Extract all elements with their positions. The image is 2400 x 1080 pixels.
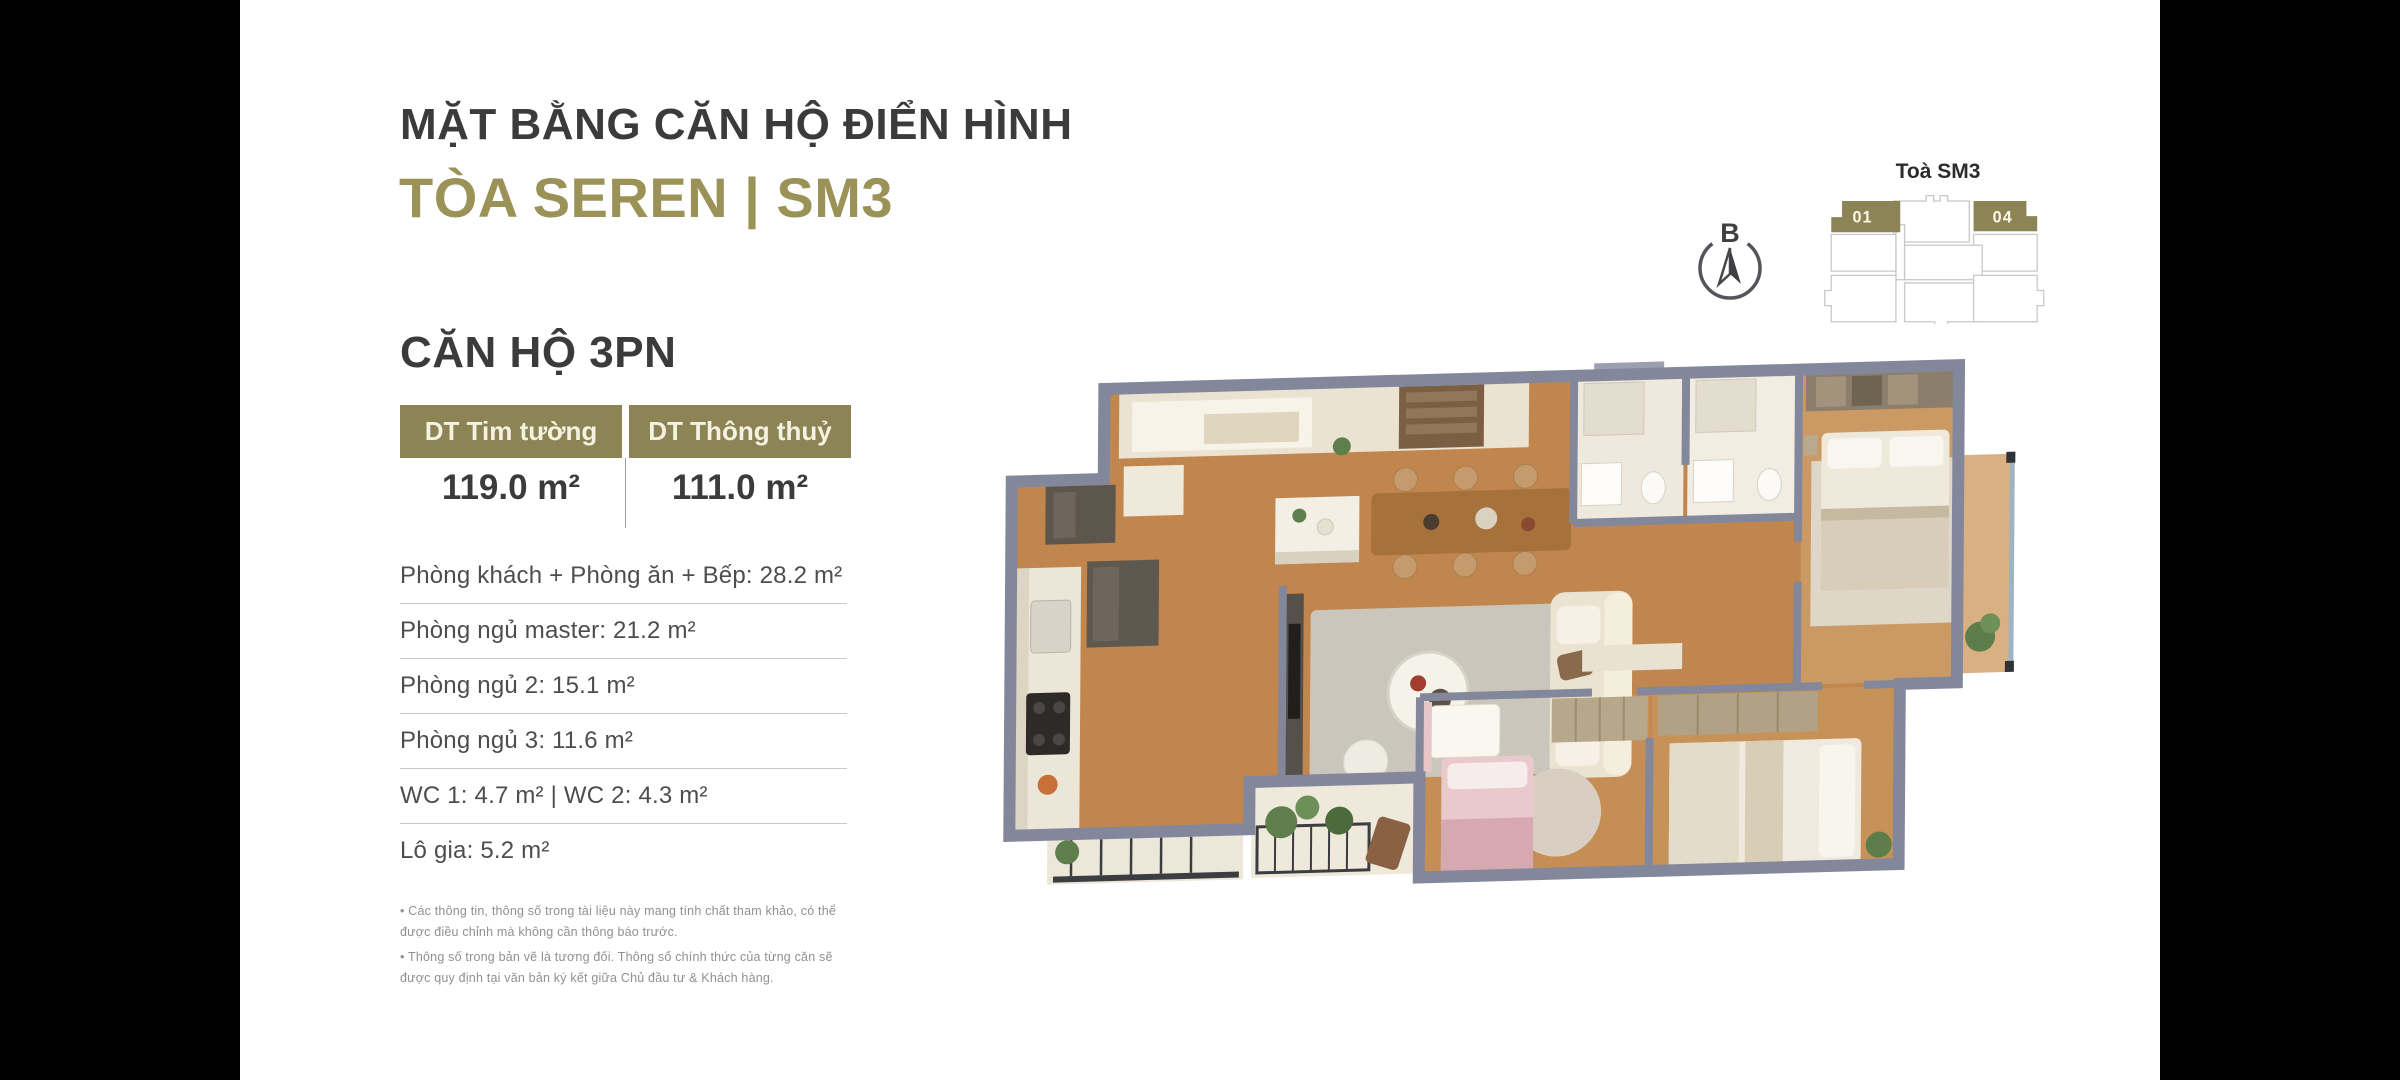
apartment-name: CĂN HỘ 3PN <box>400 328 676 378</box>
master-bedroom <box>1802 369 1960 627</box>
room-list: Phòng khách + Phòng ăn + Bếp: 28.2 m² Ph… <box>400 549 847 878</box>
crib <box>1430 704 1500 758</box>
room-list-item: Phòng ngủ 2: 15.1 m² <box>400 659 847 714</box>
compass-arrow-right <box>1730 248 1741 284</box>
tower-unit-01-label: 01 <box>1852 209 1872 227</box>
tower-unit-04-label: 04 <box>1993 209 2013 227</box>
compass-arrow-left <box>1719 248 1730 284</box>
disclaimer-notes: • Các thông tin, thông số trong tài liệu… <box>400 901 862 993</box>
hall-console <box>1582 643 1682 672</box>
room-list-item: Phòng ngủ 3: 11.6 m² <box>400 714 847 769</box>
page-title: MẶT BẰNG CĂN HỘ ĐIỂN HÌNH <box>400 100 1072 150</box>
area-table: DT Tim tường DT Thông thuỷ 119.0 m² 111.… <box>400 405 851 527</box>
room-list-item: Phòng ngủ master: 21.2 m² <box>400 604 847 659</box>
disclaimer-note: • Thông số trong bản vẽ là tương đối. Th… <box>400 947 862 989</box>
table-column-divider <box>625 458 626 528</box>
living-balcony <box>1251 779 1418 878</box>
tower-keyplan-title: Toà SM3 <box>1810 160 2066 184</box>
floorplan-render <box>940 348 2070 893</box>
room-list-item: Lô gia: 5.2 m² <box>400 824 847 878</box>
master-balcony <box>1957 452 2016 674</box>
kitchen-island <box>1275 496 1359 564</box>
area-col1-value: 119.0 m² <box>400 468 622 508</box>
area-col2-value: 111.0 m² <box>629 468 851 508</box>
area-col1-header: DT Tim tường <box>400 405 622 458</box>
compass-north-label: B <box>1720 218 1740 248</box>
slide-canvas: MẶT BẰNG CĂN HỘ ĐIỂN HÌNH TÒA SEREN | SM… <box>240 0 2160 1080</box>
tower-keyplan-diagram: 01 04 <box>1814 188 2062 324</box>
room-list-item: Phòng khách + Phòng ăn + Bếp: 28.2 m² <box>400 549 847 604</box>
area-col2-header: DT Thông thuỷ <box>629 405 851 458</box>
north-compass-icon: B <box>1688 208 1773 313</box>
disclaimer-note: • Các thông tin, thông số trong tài liệu… <box>400 901 862 943</box>
room-list-item: WC 1: 4.7 m² | WC 2: 4.3 m² <box>400 769 847 824</box>
tower-subtitle: TÒA SEREN | SM3 <box>399 165 893 230</box>
